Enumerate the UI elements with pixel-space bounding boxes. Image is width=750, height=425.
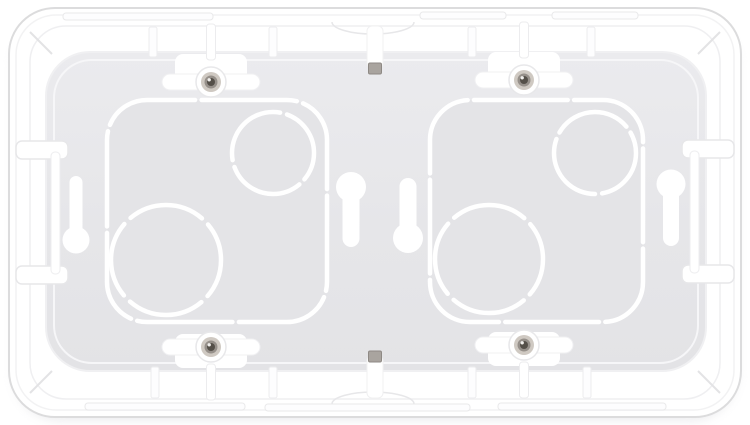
rib-bottom-3 xyxy=(468,367,476,398)
screw-highlight xyxy=(521,76,524,79)
rib-top-3 xyxy=(468,27,476,57)
keyhole-head xyxy=(63,227,90,254)
screw-highlight xyxy=(521,341,524,344)
rim-groove-top-3 xyxy=(552,12,638,19)
double-gang-back-box-photo xyxy=(0,0,750,425)
product-photo-stage xyxy=(0,0,750,425)
cable-notch-slot-top xyxy=(367,26,383,68)
rim-groove-bottom-1 xyxy=(85,403,245,410)
keyhole-head xyxy=(393,223,423,253)
keyhole-head xyxy=(336,172,366,202)
screw-highlight xyxy=(208,78,211,81)
rim-slot-right-vertical xyxy=(690,151,699,273)
rib-top-2 xyxy=(269,27,277,57)
rim-groove-top-2 xyxy=(420,12,506,19)
rim-groove-bottom-2 xyxy=(265,404,470,411)
rib-bottom-2 xyxy=(269,367,277,398)
cable-notch-tab-bottom xyxy=(369,351,382,362)
keyhole-head xyxy=(657,170,686,199)
cable-notch-tab-top xyxy=(369,63,382,74)
box-geometry xyxy=(9,8,741,421)
rib-top-1 xyxy=(149,27,157,57)
screw-stem-rib xyxy=(207,364,216,400)
screw-stem-rib xyxy=(207,24,216,60)
screw-stem-rib xyxy=(520,22,529,58)
rib-bottom-4 xyxy=(583,367,591,398)
rim-groove-bottom-3 xyxy=(498,403,666,410)
screw-highlight xyxy=(208,343,211,346)
rim-groove-top-1 xyxy=(63,13,213,20)
rim-slot-left-vertical xyxy=(51,152,60,274)
rib-bottom-1 xyxy=(151,367,159,398)
rib-top-4 xyxy=(587,27,595,57)
screw-stem-rib xyxy=(520,362,529,398)
